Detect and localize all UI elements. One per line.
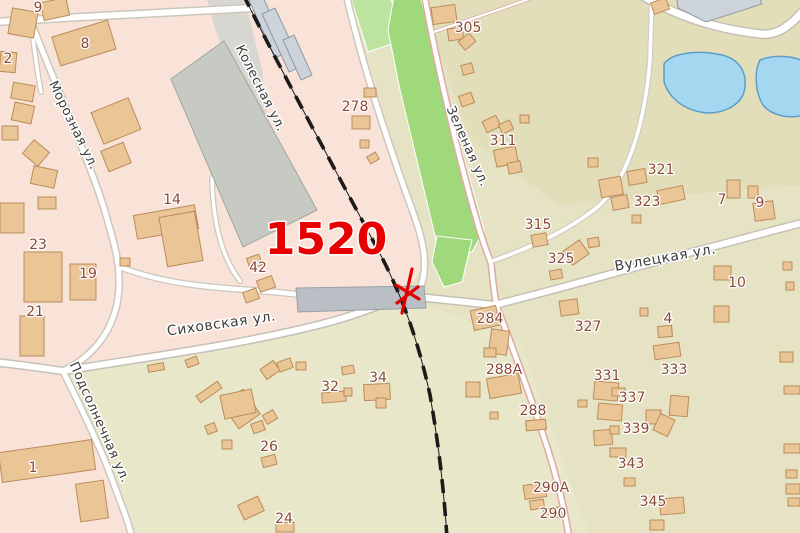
building [780,352,793,362]
building [784,444,800,453]
building [466,382,480,397]
building [587,237,599,248]
building [610,426,619,434]
building-number: 345 [640,494,667,510]
building [520,115,529,123]
annotation-1520: 1520 [265,214,387,265]
building [490,412,498,419]
building-number: 343 [618,456,645,472]
building [364,88,376,97]
building [24,252,62,302]
building-number: 323 [634,194,661,210]
building-number: 9 [756,195,765,211]
building-number: 288 [520,403,547,419]
building [669,395,689,416]
building [352,116,370,129]
building [11,102,34,124]
building [786,282,794,290]
building [714,306,729,322]
building-number: 311 [490,133,517,149]
building-number: 14 [163,192,181,208]
building-number: 1 [29,460,38,476]
building [632,215,641,223]
building [507,161,522,174]
building [526,419,547,431]
building-number: 32 [321,379,339,395]
building [650,520,664,530]
building-number: 19 [79,266,97,282]
building [461,63,474,76]
building [20,316,44,356]
building-number: 315 [525,217,552,233]
building-number: 4 [664,311,673,327]
building [484,348,496,357]
building [360,140,369,148]
building-number: 9 [34,0,43,16]
building-number: 8 [81,36,90,52]
building [11,82,35,102]
building [75,480,108,522]
building [344,388,352,396]
building [627,169,647,186]
building-number: 34 [369,370,387,386]
building [578,400,587,407]
map-canvas[interactable]: Морозная ул.Колесная ул.Зеленая ул.Вулец… [0,0,800,533]
map-viewport[interactable]: Морозная ул.Колесная ул.Зеленая ул.Вулец… [0,0,800,533]
building [2,126,18,140]
building [559,299,579,316]
building [120,258,130,266]
building-number: 327 [575,319,602,335]
building-number: 290А [533,480,570,496]
building-number: 325 [548,251,575,267]
building [786,484,800,494]
building-number: 337 [619,390,646,406]
building [611,195,629,211]
building-number: 26 [260,439,278,455]
building-number: 2 [4,51,13,67]
building [786,470,797,478]
building [653,342,681,359]
building-number: 305 [455,20,482,36]
building-number: 10 [728,275,746,291]
building-number: 284 [477,311,504,327]
building-number: 7 [718,192,727,208]
building-number: 339 [623,421,650,437]
building-number: 24 [275,511,293,527]
building-number: 21 [26,304,44,320]
building [599,176,624,198]
building [788,498,800,506]
building-number: 333 [661,362,688,378]
building [431,4,457,24]
building-number: 321 [648,162,675,178]
building [376,398,386,408]
building [784,386,800,394]
building-number: 288А [486,362,523,378]
building [531,233,548,247]
building-number: 23 [29,237,47,253]
building [222,440,232,449]
building-number: 331 [594,368,621,384]
building [549,269,562,280]
building-number: 290 [540,506,567,522]
building [38,197,56,209]
building [640,308,648,316]
building [0,203,24,233]
building [588,158,598,167]
building [341,365,354,375]
building [658,325,673,337]
building [296,362,306,370]
building [624,478,635,486]
building [783,262,792,270]
building-number: 278 [342,99,369,115]
building [727,180,740,198]
